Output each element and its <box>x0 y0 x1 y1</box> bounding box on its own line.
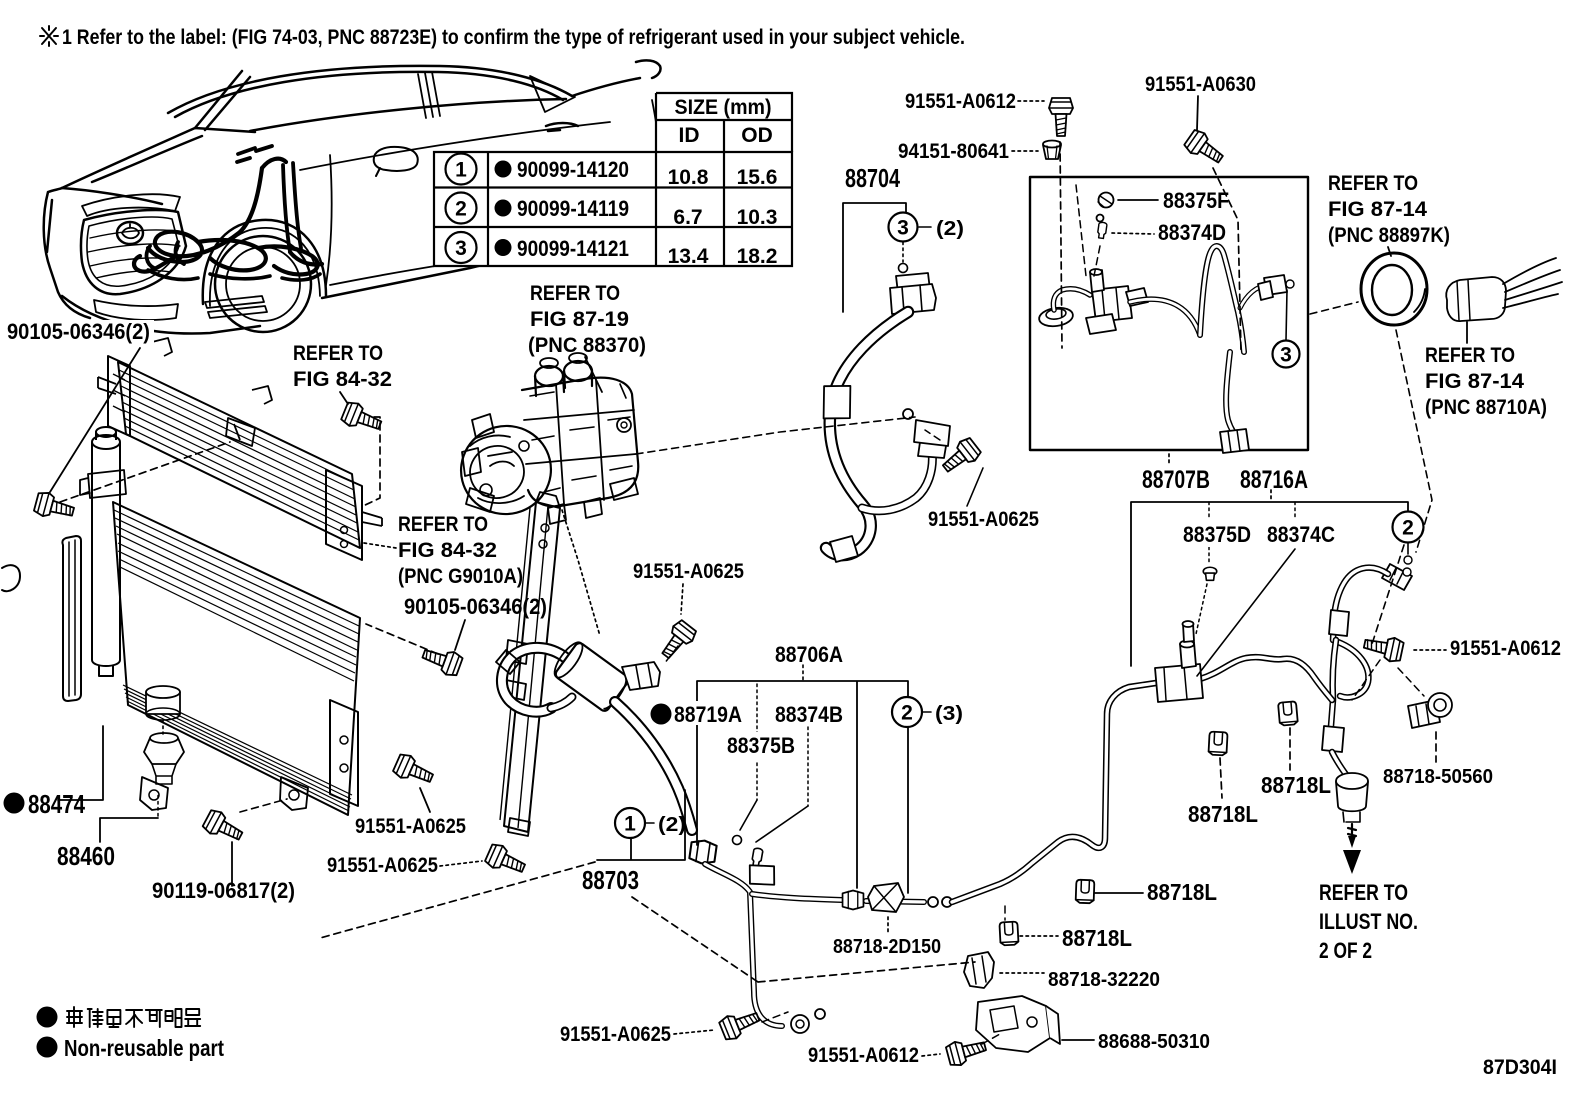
svg-text:FIG 84-32: FIG 84-32 <box>293 368 392 391</box>
svg-text:88460: 88460 <box>57 841 115 871</box>
svg-text:88375B: 88375B <box>727 733 795 758</box>
svg-text:REFER TO: REFER TO <box>398 513 488 536</box>
svg-text:90119-06817(2): 90119-06817(2) <box>152 878 295 903</box>
svg-text:15.6: 15.6 <box>737 166 778 189</box>
svg-text:91551-A0625: 91551-A0625 <box>633 560 744 583</box>
svg-text:94151-80641: 94151-80641 <box>898 140 1009 163</box>
svg-text:87D304I: 87D304I <box>1483 1056 1557 1079</box>
svg-text:90105-06346(2): 90105-06346(2) <box>7 319 150 344</box>
svg-text:88719A: 88719A <box>674 702 742 727</box>
svg-text:ILLUST NO.: ILLUST NO. <box>1319 909 1418 934</box>
svg-text:88375F: 88375F <box>1163 188 1229 213</box>
svg-text:88718L: 88718L <box>1062 925 1132 951</box>
svg-text:88718L: 88718L <box>1147 879 1217 905</box>
svg-text:88718-2D150: 88718-2D150 <box>833 936 941 958</box>
svg-text:OD: OD <box>741 124 773 147</box>
svg-text:88374D: 88374D <box>1158 220 1226 245</box>
svg-text:88718-50560: 88718-50560 <box>1383 766 1493 788</box>
svg-text:(3): (3) <box>935 703 963 725</box>
svg-text:88718-32220: 88718-32220 <box>1048 969 1160 991</box>
svg-text:90099-14121: 90099-14121 <box>517 236 629 261</box>
svg-text:90099-14120: 90099-14120 <box>517 157 629 182</box>
svg-text:88704: 88704 <box>845 163 900 193</box>
svg-text:6.7: 6.7 <box>673 206 702 229</box>
svg-text:2 OF 2: 2 OF 2 <box>1319 938 1372 963</box>
svg-text:2: 2 <box>901 702 913 725</box>
svg-text:88374B: 88374B <box>775 702 843 727</box>
svg-text:REFER TO: REFER TO <box>293 342 383 365</box>
svg-text:13.4: 13.4 <box>668 245 709 268</box>
svg-text:91551-A0625: 91551-A0625 <box>327 854 438 877</box>
svg-text:FIG 87-14: FIG 87-14 <box>1425 370 1524 393</box>
svg-text:REFER TO: REFER TO <box>1328 172 1418 195</box>
svg-text:88703: 88703 <box>582 865 639 895</box>
svg-text:88707B: 88707B <box>1142 466 1210 494</box>
svg-text:2: 2 <box>1402 517 1414 540</box>
svg-text:91551-A0625: 91551-A0625 <box>560 1023 671 1046</box>
svg-text:FIG 87-14: FIG 87-14 <box>1328 198 1427 221</box>
svg-text:91551-A0625: 91551-A0625 <box>928 508 1039 531</box>
svg-text:SIZE (mm): SIZE (mm) <box>675 96 772 119</box>
svg-text:90105-06346(2): 90105-06346(2) <box>404 594 547 619</box>
svg-text:(PNC 88370): (PNC 88370) <box>528 334 646 357</box>
svg-text:REFER TO: REFER TO <box>530 282 620 305</box>
svg-text:18.2: 18.2 <box>737 245 778 268</box>
svg-text:88688-50310: 88688-50310 <box>1098 1031 1210 1053</box>
svg-text:1: 1 <box>455 159 467 182</box>
svg-text:88718L: 88718L <box>1261 772 1331 798</box>
svg-text:(PNC G9010A): (PNC G9010A) <box>398 565 523 588</box>
svg-text:88375D: 88375D <box>1183 522 1251 547</box>
svg-text:FIG 84-32: FIG 84-32 <box>398 539 497 562</box>
svg-text:3: 3 <box>1280 344 1292 367</box>
svg-text:3: 3 <box>897 217 909 240</box>
svg-text:REFER TO: REFER TO <box>1425 344 1515 367</box>
svg-text:10.3: 10.3 <box>737 206 778 229</box>
svg-text:(PNC 88897K): (PNC 88897K) <box>1328 224 1450 247</box>
svg-text:3: 3 <box>455 237 467 260</box>
svg-text:91551-A0612: 91551-A0612 <box>1450 637 1561 660</box>
svg-text:2: 2 <box>455 198 467 221</box>
svg-text:90099-14119: 90099-14119 <box>517 196 629 221</box>
svg-text:ID: ID <box>679 124 700 147</box>
svg-text:91551-A0625: 91551-A0625 <box>355 815 466 838</box>
svg-text:(2): (2) <box>658 814 686 836</box>
svg-text:91551-A0612: 91551-A0612 <box>905 90 1016 113</box>
svg-text:(PNC 88710A): (PNC 88710A) <box>1425 396 1547 419</box>
svg-text:Non-reusable part: Non-reusable part <box>64 1035 224 1061</box>
svg-text:91551-A0612: 91551-A0612 <box>808 1044 919 1067</box>
svg-text:88716A: 88716A <box>1240 466 1308 494</box>
svg-text:FIG 87-19: FIG 87-19 <box>530 308 629 331</box>
svg-text:10.8: 10.8 <box>668 166 709 189</box>
svg-text:REFER TO: REFER TO <box>1319 880 1408 905</box>
svg-text:(2): (2) <box>936 218 964 240</box>
svg-text:88374C: 88374C <box>1267 522 1335 547</box>
svg-text:88706A: 88706A <box>775 642 843 667</box>
svg-text:1 Refer to the label: (FIG 74: 1 Refer to the label: (FIG 74-03, PNC 88… <box>62 26 965 49</box>
svg-text:88474: 88474 <box>28 789 85 819</box>
svg-text:88718L: 88718L <box>1188 801 1258 827</box>
svg-text:91551-A0630: 91551-A0630 <box>1145 73 1256 96</box>
svg-text:1: 1 <box>624 813 636 836</box>
